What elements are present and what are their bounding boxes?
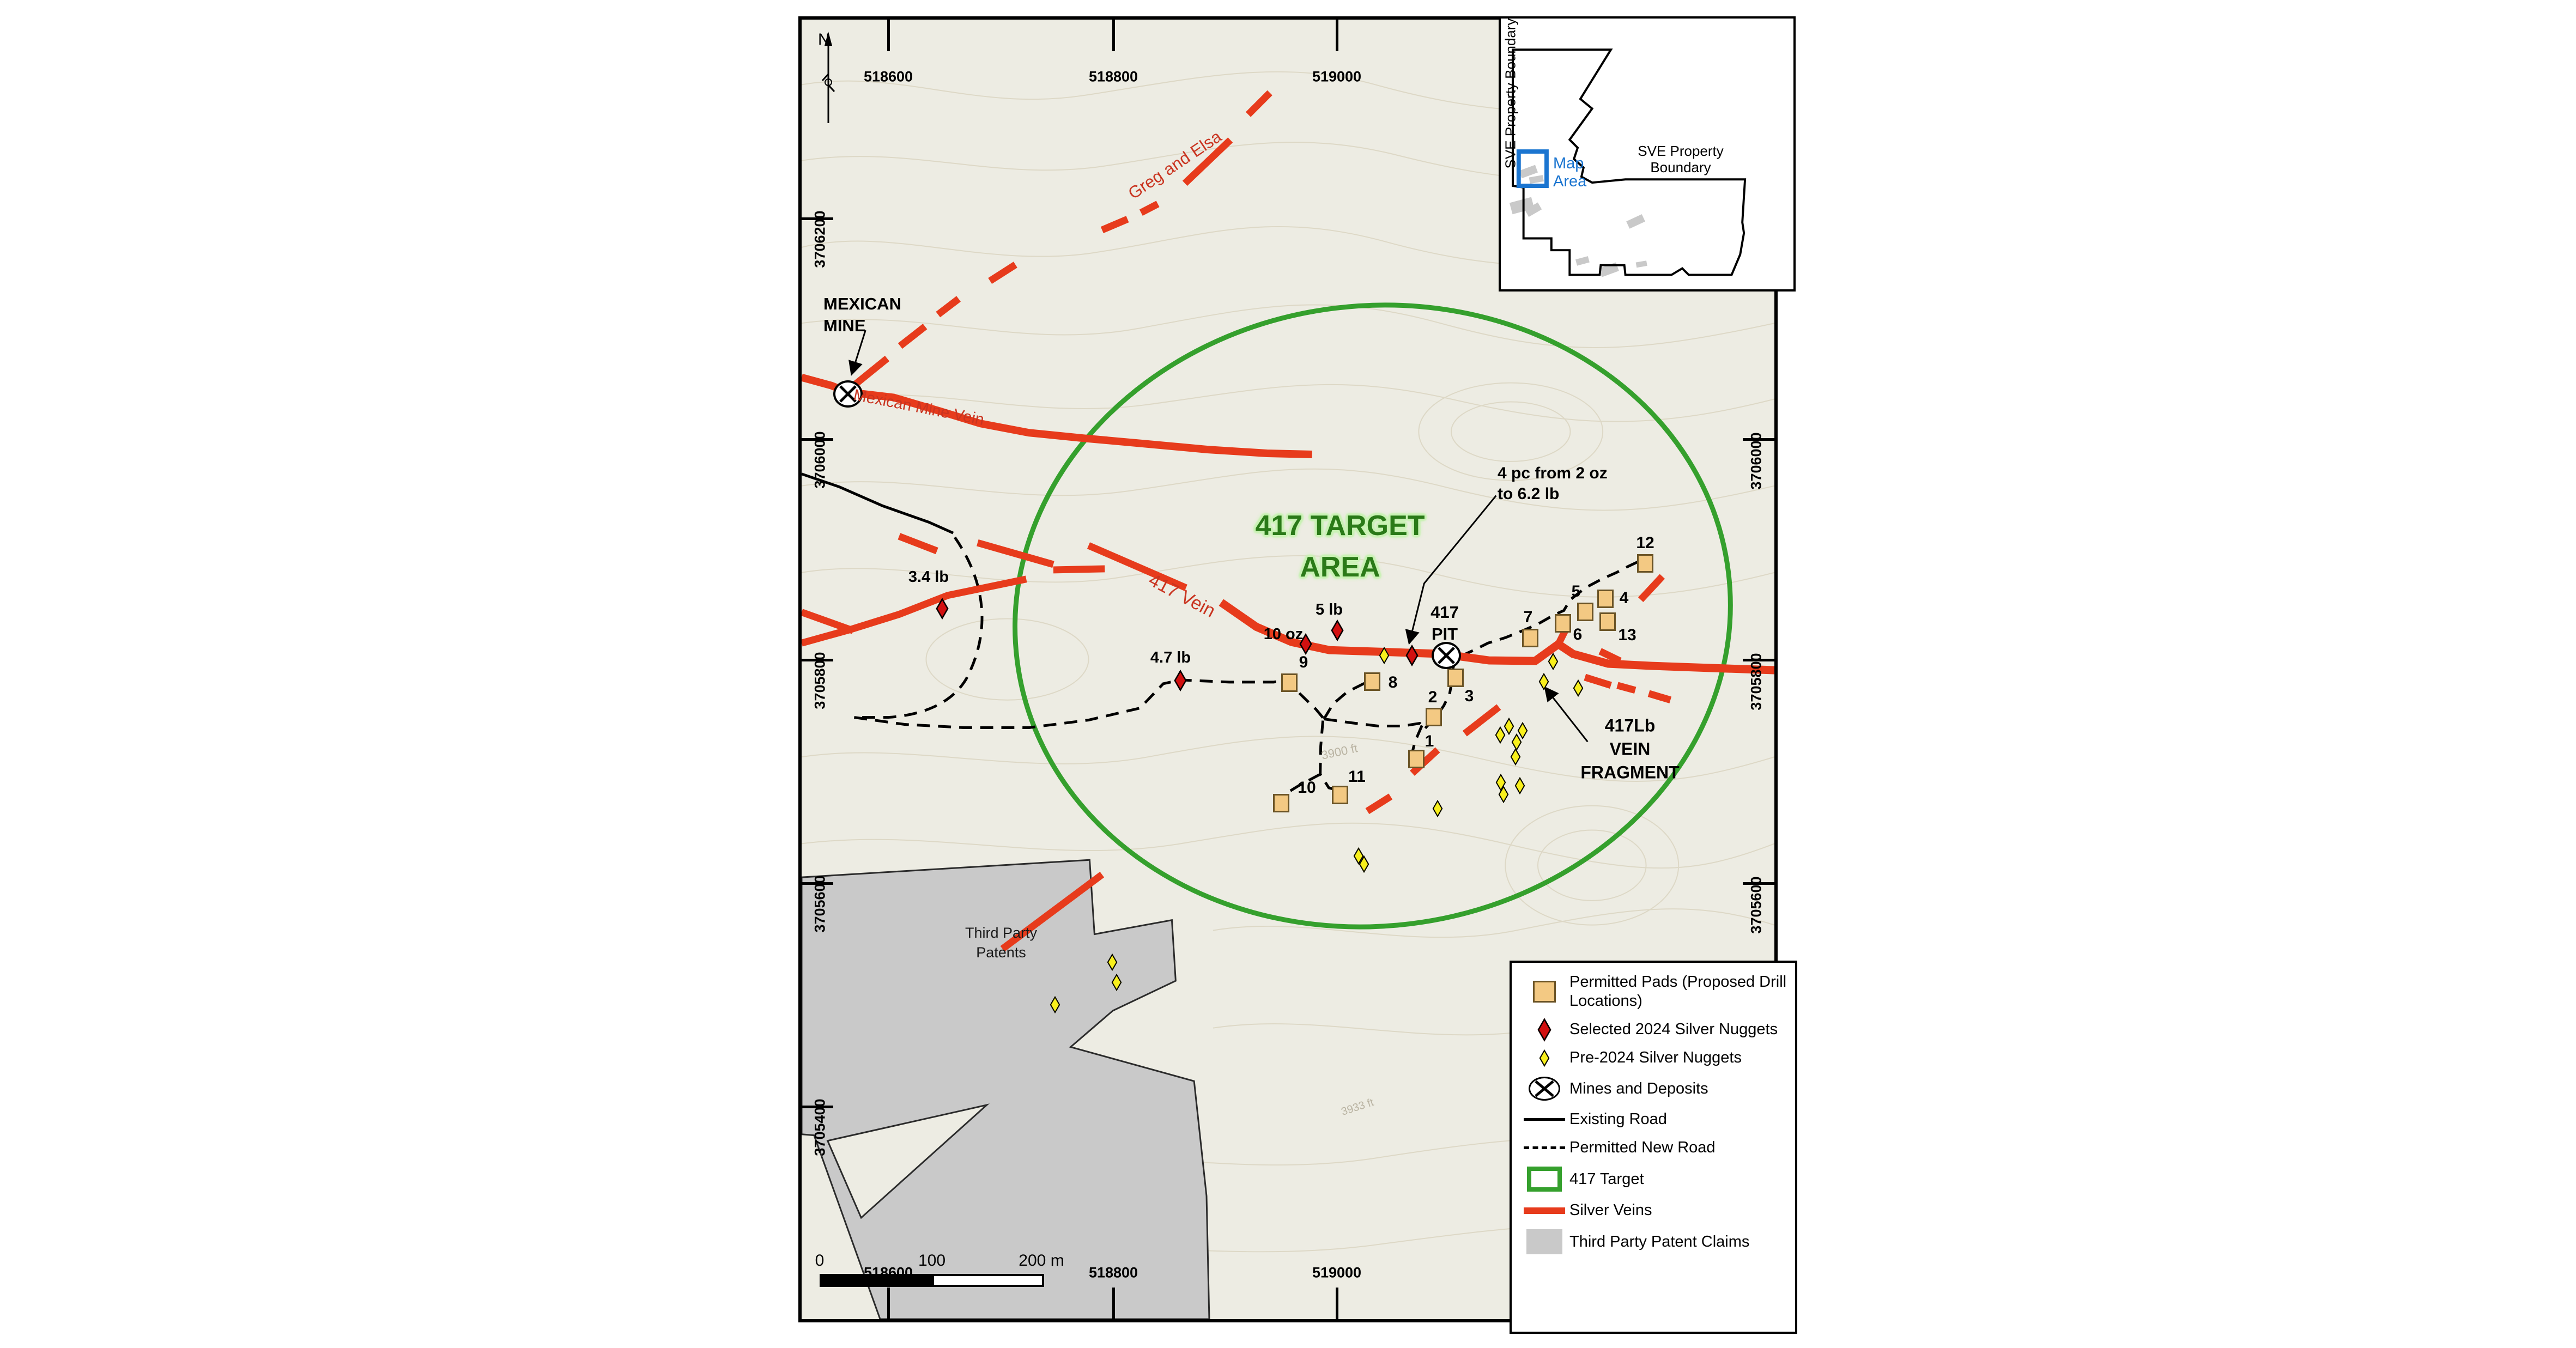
north-label: N bbox=[818, 31, 830, 49]
legend-item: Third Party Patent Claims bbox=[1519, 1229, 1789, 1254]
legend-label: 417 Target bbox=[1569, 1170, 1644, 1189]
north-arrow: N bbox=[813, 31, 845, 156]
legend-label: Silver Veins bbox=[1569, 1201, 1652, 1220]
legend-label: Mines and Deposits bbox=[1569, 1079, 1708, 1098]
legend-label: Permitted New Road bbox=[1569, 1138, 1716, 1157]
legend-item: Permitted New Road bbox=[1519, 1138, 1789, 1157]
legend-item: Silver Veins bbox=[1519, 1201, 1789, 1220]
legend-label: Permitted Pads (Proposed Drill Locations… bbox=[1569, 973, 1789, 1011]
legend-items: Permitted Pads (Proposed Drill Locations… bbox=[1519, 973, 1789, 1254]
inset-boundary-label: SVE Property Boundary bbox=[1632, 143, 1730, 175]
legend-item: Pre-2024 Silver Nuggets bbox=[1519, 1048, 1789, 1067]
scale-100: 100 bbox=[918, 1252, 945, 1270]
easting-label: 519000 bbox=[1312, 1265, 1361, 1282]
inset-boundary-label-vertical: SVE Property Boundary bbox=[1502, 136, 1519, 169]
scale-zero: 0 bbox=[815, 1252, 825, 1270]
legend-label: Selected 2024 Silver Nuggets bbox=[1569, 1020, 1778, 1039]
easting-label: 518800 bbox=[1089, 69, 1138, 86]
northing-label: 3705800 bbox=[1748, 653, 1765, 710]
legend-item: Mines and Deposits bbox=[1519, 1077, 1789, 1101]
legend-swatch-mine bbox=[1519, 1077, 1569, 1101]
legend-swatch-pad bbox=[1519, 981, 1569, 1003]
easting-label: 518600 bbox=[864, 69, 913, 86]
legend-item: 417 Target bbox=[1519, 1167, 1789, 1192]
legend: Permitted Pads (Proposed Drill Locations… bbox=[1510, 961, 1797, 1334]
easting-label: 518800 bbox=[1089, 1265, 1138, 1282]
legend-swatch-ydia bbox=[1519, 1052, 1569, 1065]
scale-bar-black bbox=[820, 1274, 932, 1287]
northing-label: 3705600 bbox=[1748, 876, 1765, 933]
grid-tick bbox=[1112, 1288, 1115, 1319]
legend-swatch-road bbox=[1519, 1118, 1569, 1121]
legend-swatch-vein bbox=[1519, 1207, 1569, 1214]
northing-label: 3706000 bbox=[812, 431, 829, 488]
scale-bar-white bbox=[932, 1274, 1044, 1287]
northing-label: 3705800 bbox=[812, 652, 829, 709]
inset-map-area-label: Map Area bbox=[1553, 155, 1613, 191]
legend-label: Existing Road bbox=[1569, 1110, 1667, 1129]
scale-200m: 200 m bbox=[1019, 1252, 1064, 1270]
legend-swatch-pat bbox=[1519, 1229, 1569, 1254]
northing-label: 3706200 bbox=[812, 210, 829, 268]
northing-label: 3706000 bbox=[1748, 432, 1765, 489]
northing-label: 3705400 bbox=[812, 1098, 829, 1156]
legend-label: Pre-2024 Silver Nuggets bbox=[1569, 1048, 1742, 1067]
legend-swatch-nroad bbox=[1519, 1146, 1569, 1149]
grid-tick bbox=[887, 20, 890, 51]
grid-tick bbox=[887, 1288, 890, 1319]
grid-tick bbox=[1336, 20, 1338, 51]
legend-label: Third Party Patent Claims bbox=[1569, 1232, 1749, 1252]
page: 12345678910111213MEXICANMINE417PIT4 pc f… bbox=[0, 0, 2576, 1348]
legend-swatch-target bbox=[1519, 1167, 1569, 1192]
legend-swatch-rdia bbox=[1519, 1023, 1569, 1037]
inset-map: SVE Property Boundary Map Area SVE Prope… bbox=[1499, 16, 1796, 292]
legend-item: Permitted Pads (Proposed Drill Locations… bbox=[1519, 973, 1789, 1011]
northing-label: 3705600 bbox=[812, 875, 829, 932]
easting-label: 519000 bbox=[1312, 69, 1361, 86]
grid-tick bbox=[1112, 20, 1115, 51]
legend-item: Selected 2024 Silver Nuggets bbox=[1519, 1020, 1789, 1039]
grid-tick bbox=[1336, 1288, 1338, 1319]
legend-item: Existing Road bbox=[1519, 1110, 1789, 1129]
